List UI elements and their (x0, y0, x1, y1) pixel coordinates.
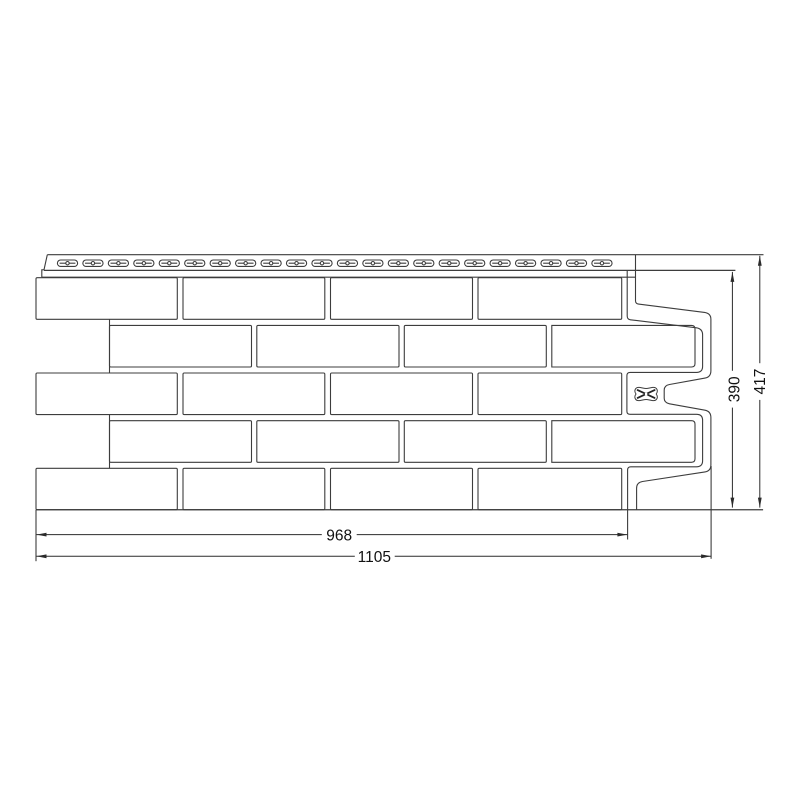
svg-text:968: 968 (326, 528, 352, 545)
svg-text:390: 390 (727, 376, 744, 402)
svg-text:417: 417 (752, 369, 769, 395)
svg-text:1105: 1105 (358, 549, 391, 566)
